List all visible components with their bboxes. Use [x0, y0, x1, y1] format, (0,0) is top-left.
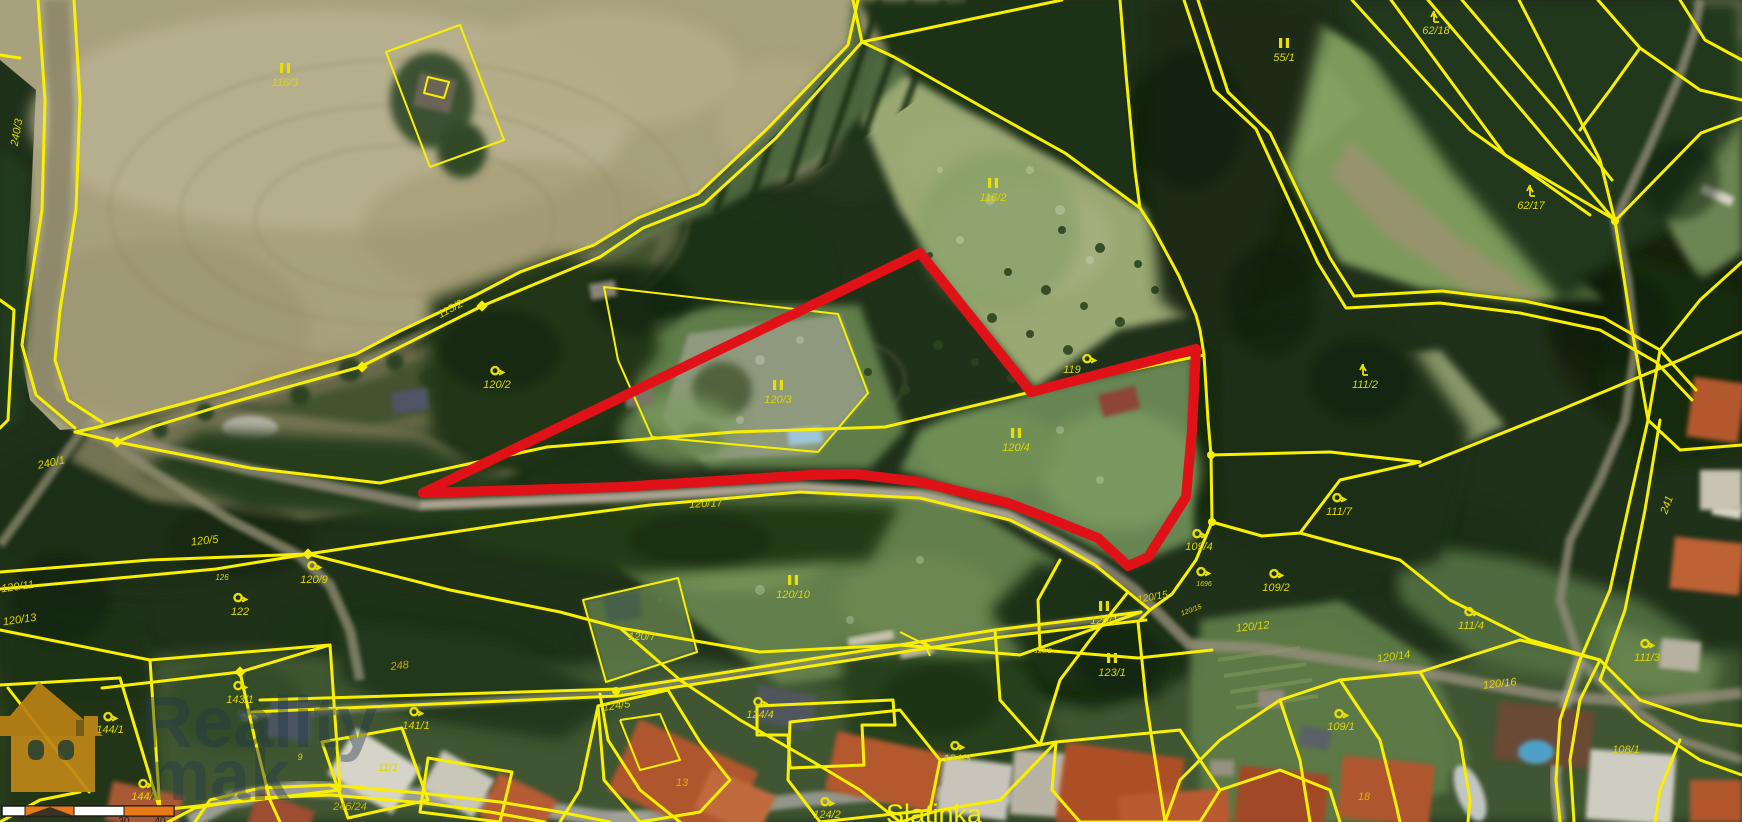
- svg-text:18: 18: [1358, 791, 1371, 803]
- svg-text:109/1: 109/1: [1327, 721, 1355, 733]
- svg-text:1696: 1696: [1196, 581, 1212, 588]
- svg-text:120/17: 120/17: [689, 497, 724, 511]
- svg-text:111/7: 111/7: [1326, 506, 1353, 518]
- svg-text:141/1: 141/1: [402, 720, 430, 732]
- svg-text:120/9: 120/9: [300, 574, 328, 586]
- svg-text:109/4: 109/4: [1185, 541, 1213, 553]
- svg-text:108/1: 108/1: [1612, 744, 1640, 756]
- svg-text:120/7: 120/7: [628, 631, 656, 643]
- svg-text:246/24: 246/24: [332, 801, 367, 813]
- svg-text:120/3: 120/3: [764, 394, 792, 406]
- svg-text:248: 248: [389, 659, 410, 673]
- svg-text:30: 30: [118, 816, 130, 822]
- svg-text:111/4: 111/4: [1458, 620, 1484, 632]
- svg-text:122: 122: [231, 606, 249, 618]
- svg-text:126: 126: [215, 573, 229, 582]
- svg-text:62/18: 62/18: [1422, 25, 1450, 37]
- svg-text:123/2: 123/2: [1034, 648, 1052, 655]
- svg-text:109/2: 109/2: [1262, 582, 1290, 594]
- svg-text:10: 10: [19, 816, 31, 822]
- svg-text:124/4: 124/4: [746, 709, 774, 721]
- svg-text:116/2: 116/2: [980, 192, 1007, 204]
- svg-text:120/10: 120/10: [776, 589, 811, 601]
- svg-text:119: 119: [1063, 364, 1081, 376]
- svg-text:124/3: 124/3: [943, 753, 971, 765]
- svg-text:124/2: 124/2: [813, 809, 841, 821]
- svg-text:111/3: 111/3: [1634, 652, 1661, 664]
- svg-text:62/17: 62/17: [1517, 200, 1545, 212]
- svg-text:120/2: 120/2: [483, 379, 511, 391]
- svg-text:Slatinka: Slatinka: [886, 799, 983, 822]
- svg-text:11/1: 11/1: [378, 762, 399, 774]
- svg-text:116/3: 116/3: [272, 77, 300, 89]
- svg-text:55/1: 55/1: [1273, 52, 1294, 64]
- svg-text:111/2: 111/2: [1352, 379, 1378, 391]
- svg-text:mak: mak: [146, 736, 291, 816]
- svg-text:120/1: 120/1: [1090, 615, 1118, 627]
- svg-text:20: 20: [68, 816, 80, 822]
- svg-text:120/4: 120/4: [1002, 442, 1030, 454]
- svg-text:13: 13: [676, 777, 689, 789]
- svg-text:40: 40: [154, 816, 166, 822]
- svg-text:123/1: 123/1: [1098, 667, 1126, 679]
